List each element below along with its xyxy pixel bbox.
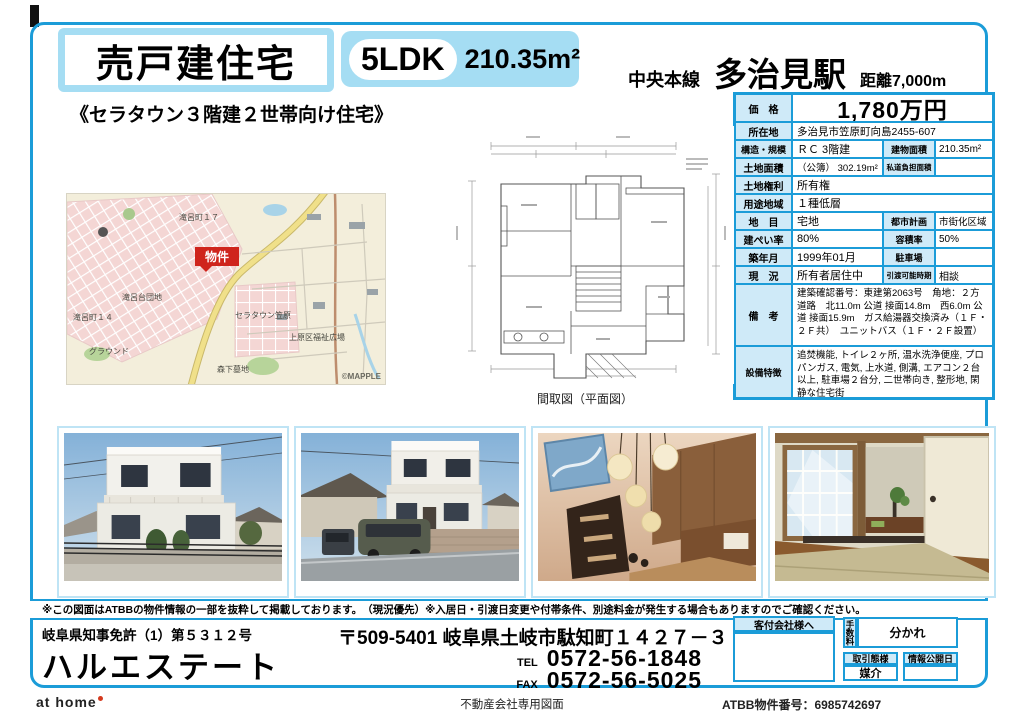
parking-value [935, 248, 993, 266]
photo-exterior-side-image [301, 433, 519, 581]
agency-name: ハルエステート [42, 642, 280, 687]
spec-row-land-rights: 土地権利 所有権 [735, 176, 993, 194]
property-type-title: 売戸建住宅 [65, 35, 327, 85]
land-category-label: 地 目 [735, 212, 792, 230]
catch-copy: 《セラタウン３階建２世帯向け住宅》 [70, 100, 393, 127]
coverage-value: 80% [792, 230, 883, 248]
built-label: 築年月 [735, 248, 792, 266]
land-area-label: 土地面積 [735, 158, 792, 176]
property-type-box: 売戸建住宅 [58, 28, 334, 92]
spec-row-features: 設備特徴 追焚機能, トイレ２ヶ所, 温水洗浄便座, プロパンガス, 電気, 上… [735, 346, 993, 398]
private-road-label: 私道負担面積 [883, 158, 935, 176]
photo-interior-washitsu [768, 426, 996, 598]
map-label: 森下墓地 [217, 364, 249, 375]
layout-area-box: 5LDK 210.35m² [341, 31, 579, 87]
athome-logo-dot-icon [98, 696, 103, 701]
coverage-label: 建ぺい率 [735, 230, 792, 248]
spec-row-coverage: 建ぺい率 80% 容積率 50% [735, 230, 993, 248]
photo-exterior-front-image [64, 433, 282, 581]
map-label: 滝呂台団地 [122, 292, 162, 303]
far-value: 50% [935, 230, 993, 248]
parking-label: 駐車場 [883, 248, 935, 266]
spec-row-price: 価 格 1,780万円 [735, 94, 993, 122]
spec-row-remarks: 備 考 建築確認番号：東建第2063号 角地：２方道路 北11.0m 公道 接面… [735, 284, 993, 346]
transaction-type-header: 取引態様 [843, 652, 898, 665]
floor-plan-drawing [436, 126, 734, 384]
land-area-value: （公簿） 302.19m² [792, 158, 883, 176]
fax-number: 0572-56-5025 [547, 667, 702, 694]
floor-plan-caption: 間取図（平面図） [436, 390, 734, 407]
publish-date-header: 情報公開日 [903, 652, 958, 665]
remarks-value: 建築確認番号：東建第2063号 角地：２方道路 北11.0m 公道 接面14.8… [792, 284, 993, 346]
features-label: 設備特徴 [735, 346, 792, 398]
structure-value: ＲＣ 3階建 [792, 140, 883, 158]
agency-fax-row: FAX 0572-56-5025 [430, 667, 702, 694]
flyer-sheet: 売戸建住宅 5LDK 210.35m² 中央本線 多治見駅 距離7,000m 《… [0, 0, 1024, 724]
building-area-value: 210.35m² [935, 140, 993, 158]
publish-date-value [903, 665, 958, 681]
price-label: 価 格 [735, 94, 792, 122]
station-name: 多治見駅 [714, 48, 846, 96]
private-road-value [935, 158, 993, 176]
location-map: 滝呂町１７ 滝呂台団地 滝呂町１４ グラウンド セラタウン笠原 森下墓地 上原区… [66, 193, 386, 385]
map-label: 上原区福祉広場 [289, 332, 345, 343]
spec-row-status: 現 況 所有者居住中 引渡可能時期 相談 [735, 266, 993, 284]
city-planning-value: 市街化区域 [935, 212, 993, 230]
map-label: グラウンド [89, 346, 129, 357]
map-label: セラタウン笠原 [235, 310, 291, 321]
photo-interior-washitsu-image [775, 433, 989, 581]
building-area-label: 建物面積 [883, 140, 935, 158]
athome-logo-text: at home [36, 694, 97, 710]
agency-license: 岐阜県知事免許（1）第５３１２号 [42, 624, 252, 644]
use-district-value: １種低層 [792, 194, 993, 212]
land-category-value: 宅地 [792, 212, 883, 230]
client-company-header: 客付会社様へ [733, 616, 835, 632]
spec-row-location: 所在地 多治見市笠原町向島2455-607 [735, 122, 993, 140]
remarks-label: 備 考 [735, 284, 792, 346]
fax-label: FAX [516, 679, 537, 691]
station-distance: 距離7,000m [860, 67, 946, 91]
location-value: 多治見市笠原町向島2455-607 [792, 122, 993, 140]
status-value: 所有者居住中 [792, 266, 883, 284]
client-company-memo-box [733, 632, 835, 682]
athome-logo: at home [36, 694, 104, 710]
layout-badge: 5LDK [349, 39, 457, 80]
land-rights-value: 所有権 [792, 176, 993, 194]
status-label: 現 況 [735, 266, 792, 284]
fee-value: 分かれ [857, 617, 958, 648]
spec-row-land-area: 土地面積 （公簿） 302.19m² 私道負担面積 [735, 158, 993, 176]
property-map-marker: 物件 [195, 247, 239, 266]
spec-row-built: 築年月 1999年01月 駐車場 [735, 248, 993, 266]
use-district-label: 用途地域 [735, 194, 792, 212]
document-type-text: 不動産会社専用図面 [400, 696, 624, 712]
location-label: 所在地 [735, 122, 792, 140]
atbb-number: ATBB物件番号：6985742697 [722, 696, 881, 713]
built-value: 1999年01月 [792, 248, 883, 266]
spec-table: 価 格 1,780万円 所在地 多治見市笠原町向島2455-607 構造・規模 … [733, 92, 995, 400]
photo-exterior-side [294, 426, 526, 598]
features-value: 追焚機能, トイレ２ヶ所, 温水洗浄便座, プロパンガス, 電気, 上水道, 側… [792, 346, 993, 398]
photo-interior-stairwell-image [538, 433, 756, 581]
station-info: 中央本線 多治見駅 距離7,000m [628, 48, 1008, 96]
floor-plan [436, 126, 734, 384]
spec-row-structure: 構造・規模 ＲＣ 3階建 建物面積 210.35m² [735, 140, 993, 158]
fee-label: 手数料 [843, 617, 857, 648]
map-credit: ©MAPPLE [342, 372, 381, 381]
rail-line-label: 中央本線 [628, 66, 700, 92]
handover-label: 引渡可能時期 [883, 266, 935, 284]
transaction-type-value: 媒介 [843, 665, 898, 681]
city-planning-label: 都市計画 [883, 212, 935, 230]
map-label: 滝呂町１４ [73, 312, 113, 323]
structure-label: 構造・規模 [735, 140, 792, 158]
spec-row-land-category: 地 目 宅地 都市計画 市街化区域 [735, 212, 993, 230]
photo-interior-stairwell [531, 426, 763, 598]
photo-exterior-front [57, 426, 289, 598]
far-label: 容積率 [883, 230, 935, 248]
handover-value: 相談 [935, 266, 993, 284]
spec-row-use-district: 用途地域 １種低層 [735, 194, 993, 212]
map-label: 滝呂町１７ [179, 212, 219, 223]
building-area-headline: 210.35m² [465, 44, 581, 75]
land-rights-label: 土地権利 [735, 176, 792, 194]
price-value: 1,780万円 [792, 94, 993, 122]
